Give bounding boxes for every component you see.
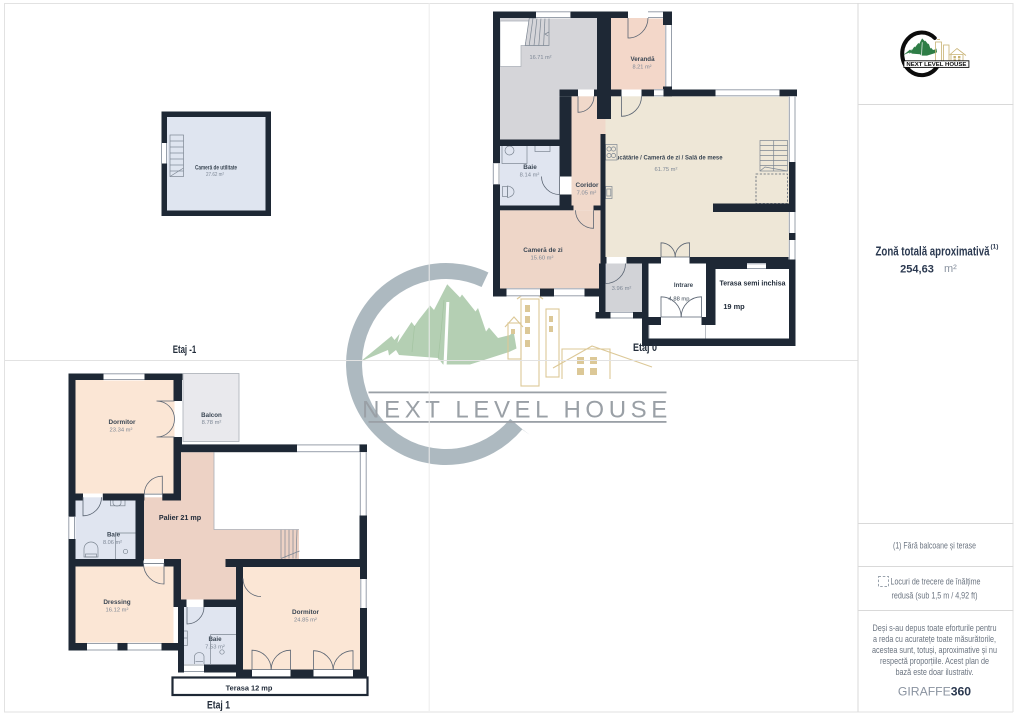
svg-text:Zonă totală aproximativă: Zonă totală aproximativă (876, 245, 991, 259)
svg-text:Etaj -1: Etaj -1 (173, 344, 197, 356)
svg-text:NEXT LEVEL HOUSE: NEXT LEVEL HOUSE (362, 397, 672, 424)
svg-text:7.05 m²: 7.05 m² (577, 191, 597, 197)
svg-text:Dormitor: Dormitor (109, 419, 136, 426)
svg-text:Cameră de zi: Cameră de zi (523, 247, 563, 254)
svg-text:acestea sunt, totuși, aproxima: acestea sunt, totuși, aproximative și nu (872, 645, 997, 656)
svg-text:Palier 21 mp: Palier 21 mp (159, 513, 202, 522)
svg-text:Etaj 0: Etaj 0 (633, 342, 657, 354)
svg-text:23.34 m²: 23.34 m² (110, 428, 133, 434)
svg-text:Coridor: Coridor (575, 182, 599, 189)
svg-text:Etaj 1: Etaj 1 (207, 700, 230, 712)
svg-text:(1): (1) (991, 244, 999, 251)
svg-text:Cameră de utilitate: Cameră de utilitate (195, 165, 237, 172)
svg-text:a reda cu acuratețe toate măsu: a reda cu acuratețe toate măsurătorile, (873, 634, 996, 645)
svg-text:27.62 m²: 27.62 m² (206, 172, 224, 178)
svg-text:Balcon: Balcon (201, 412, 222, 419)
svg-text:Bucătărie / Cameră de zi / Sal: Bucătărie / Cameră de zi / Sală de mese (612, 155, 724, 162)
svg-text:Baie: Baie (107, 532, 121, 539)
svg-text:16.71 m²: 16.71 m² (529, 55, 551, 61)
svg-text:Verandă: Verandă (630, 56, 655, 63)
svg-text:254,63: 254,63 (900, 264, 934, 276)
svg-text:Terasa 12 mp: Terasa 12 mp (226, 684, 273, 693)
svg-text:8.78 m²: 8.78 m² (202, 420, 222, 426)
svg-text:redusă (sub 1,5 m / 4,92 ft): redusă (sub 1,5 m / 4,92 ft) (892, 591, 978, 602)
svg-text:8.06 m²: 8.06 m² (103, 540, 122, 546)
svg-text:Dressing: Dressing (103, 599, 130, 606)
svg-text:NEXT LEVEL HOUSE: NEXT LEVEL HOUSE (906, 62, 967, 68)
svg-text:Baie: Baie (523, 164, 537, 171)
svg-text:Dormitor: Dormitor (292, 609, 319, 616)
svg-text:(1) Fără balcoane și terase: (1) Fără balcoane și terase (893, 541, 976, 552)
svg-text:16.12 m²: 16.12 m² (106, 608, 129, 614)
svg-text:24.85 m²: 24.85 m² (294, 618, 317, 624)
svg-text:8.21 m²: 8.21 m² (633, 64, 652, 70)
svg-text:15.60 m²: 15.60 m² (531, 256, 554, 262)
svg-text:m²: m² (944, 263, 957, 275)
svg-text:8.14 m²: 8.14 m² (520, 173, 540, 179)
svg-text:Terasa semi inchisa: Terasa semi inchisa (720, 279, 787, 288)
svg-text:Locuri de trecere de înălțime: Locuri de trecere de înălțime (891, 577, 981, 588)
svg-text:bază este doar ilustrativ.: bază este doar ilustrativ. (896, 667, 974, 678)
svg-text:Deși s-au depus toate eforturi: Deși s-au depus toate eforturile pentru (873, 623, 997, 634)
svg-text:3.96 m²: 3.96 m² (612, 286, 632, 292)
svg-text:GIRAFFE360: GIRAFFE360 (898, 685, 971, 699)
svg-text:61.75 m²: 61.75 m² (655, 167, 678, 173)
svg-text:Intrare: Intrare (674, 282, 694, 289)
svg-text:respectă proporțiile. Acest pl: respectă proporțiile. Acest plan de (880, 656, 989, 667)
svg-text:19 mp: 19 mp (723, 302, 745, 311)
